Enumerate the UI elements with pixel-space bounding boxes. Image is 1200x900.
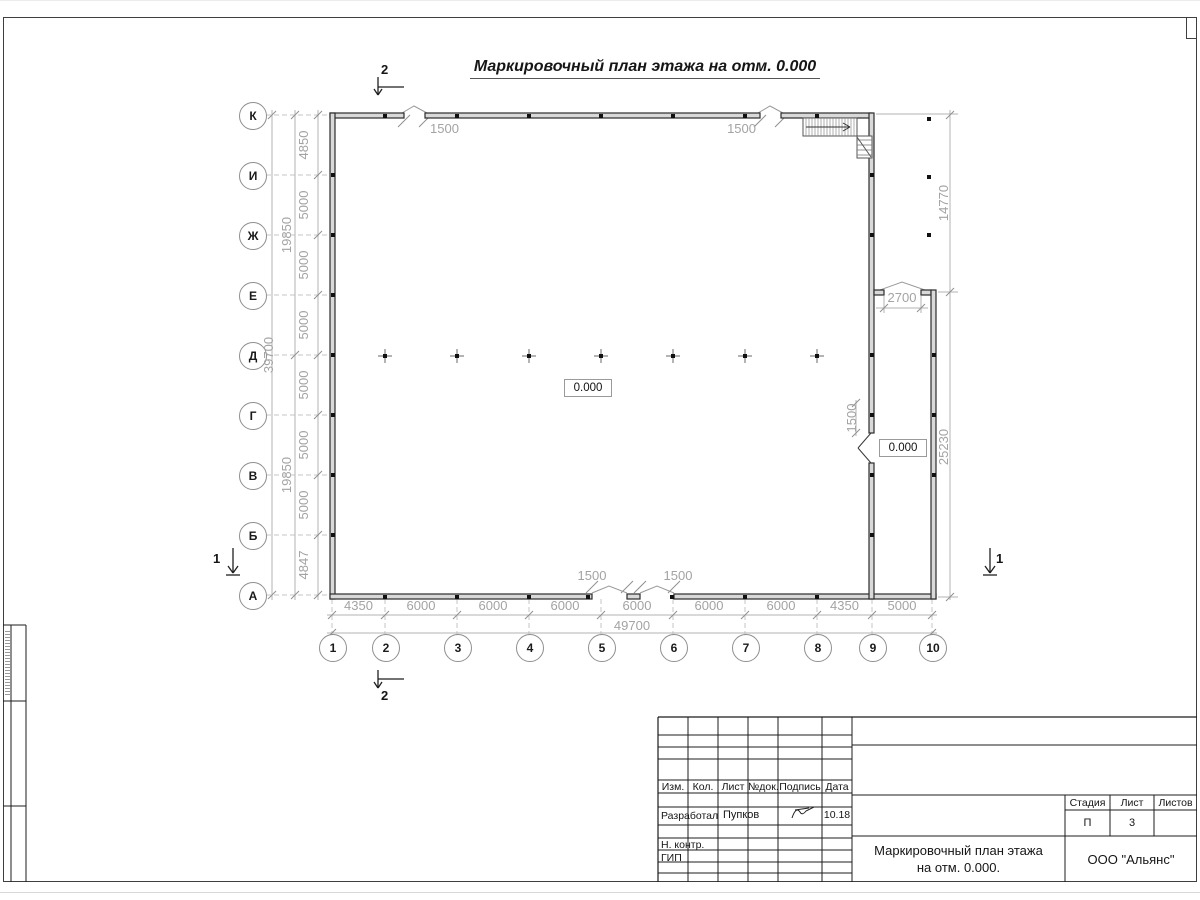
titleblock-header-kol: Кол. [688,781,718,794]
axis-col-8: 9 [859,634,887,662]
dim-left-total: 39700 [262,325,276,385]
titleblock-name-developed: Пупков [723,809,759,822]
dim-opening-right-door: 1500 [845,388,859,448]
stairs-symbol [803,118,872,158]
axis-row-0: К [239,102,267,130]
dim-left-segment-2: 5000 [297,235,311,295]
titleblock-header-ndok: №док. [748,781,778,794]
section-mark-bottom-label: 2 [381,688,388,703]
drawing-title: Маркировочный план этажа на отм. 0.000 [400,58,890,79]
dim-right-lower: 25230 [937,417,951,477]
axis-col-7: 8 [804,634,832,662]
drawing-sheet: Маркировочный план этажа на отм. 0.000 1… [0,0,1200,900]
titleblock-stage-value: П [1065,817,1110,830]
signature-icon [792,807,814,818]
dim-right-upper: 14770 [937,173,951,233]
drawing-title-text: Маркировочный план этажа на отм. 0.000 [470,58,820,79]
dim-left-segment-6: 5000 [297,475,311,535]
axis-col-0: 1 [319,634,347,662]
titleblock-sheet-value: 3 [1110,817,1154,830]
axis-row-1: И [239,162,267,190]
titleblock-date-developed: 10.18 [822,809,852,822]
dim-left-segment-5: 5000 [297,415,311,475]
dim-opening-annex: 2700 [876,291,928,305]
titleblock-role-ncontrol: Н. контр. [661,839,704,852]
dim-left-segment-4: 5000 [297,355,311,415]
dim-bottom-segment-4: 6000 [612,599,662,613]
titleblock-doc-title-line1: Маркировочный план этажа [852,843,1065,858]
dim-bottom-segment-3: 6000 [540,599,590,613]
axis-col-5: 6 [660,634,688,662]
titleblock-sheets-label: Листов [1154,797,1197,810]
axis-row-5: Г [239,402,267,430]
titleblock-sheet-label: Лист [1110,797,1154,810]
axis-row-8: А [239,582,267,610]
dim-bottom-segment-0: 4350 [334,599,384,613]
dim-opening-top-1: 1500 [430,122,482,136]
walls [330,113,936,599]
axis-col-3: 4 [516,634,544,662]
dim-left-segment-0: 4850 [297,115,311,175]
dim-bottom-segment-8: 5000 [877,599,927,613]
titleblock-role-developed: Разработал [661,810,718,823]
dim-opening-bottom-1: 1500 [566,569,618,583]
axis-row-7: Б [239,522,267,550]
titleblock-doc-title-line2: на отм. 0.000. [852,860,1065,875]
dim-bottom-segment-6: 6000 [756,599,806,613]
titleblock-header-podpis: Подпись [778,781,822,794]
plan-graphics [0,0,1200,900]
axis-row-6: В [239,462,267,490]
titleblock-company: ООО "Альянс" [1065,852,1197,867]
dim-left-group-0: 19850 [280,205,294,265]
axis-col-1: 2 [372,634,400,662]
section-mark-top-label: 2 [381,62,388,77]
titleblock-header-izm: Изм. [658,781,688,794]
dim-left-segment-1: 5000 [297,175,311,235]
section-mark-left-label: 1 [213,551,220,566]
column-markers [331,114,936,599]
dim-left-group-1: 19850 [280,445,294,505]
titleblock-role-gip: ГИП [661,852,682,865]
door-leaf-symbol [858,433,871,463]
dim-bottom-segment-1: 6000 [396,599,446,613]
dim-opening-bottom-2: 1500 [652,569,704,583]
axis-col-6: 7 [732,634,760,662]
axis-col-2: 3 [444,634,472,662]
titleblock-stage-label: Стадия [1065,797,1110,810]
dim-bottom-segment-5: 6000 [684,599,734,613]
titleblock-header-data: Дата [822,781,852,794]
axis-col-9: 10 [919,634,947,662]
dim-opening-top-2: 1500 [704,122,756,136]
elevation-mark-main: 0.000 [564,379,612,397]
axis-row-2: Ж [239,222,267,250]
dim-bottom-total: 49700 [602,619,662,633]
axis-col-4: 5 [588,634,616,662]
section-mark-right-label: 1 [996,551,1003,566]
dim-bottom-segment-7: 4350 [820,599,870,613]
titleblock-header-list: Лист [718,781,748,794]
axis-row-3: Е [239,282,267,310]
dim-left-segment-7: 4847 [297,535,311,595]
dim-left-segment-3: 5000 [297,295,311,355]
dim-bottom-segment-2: 6000 [468,599,518,613]
elevation-mark-annex: 0.000 [879,439,927,457]
